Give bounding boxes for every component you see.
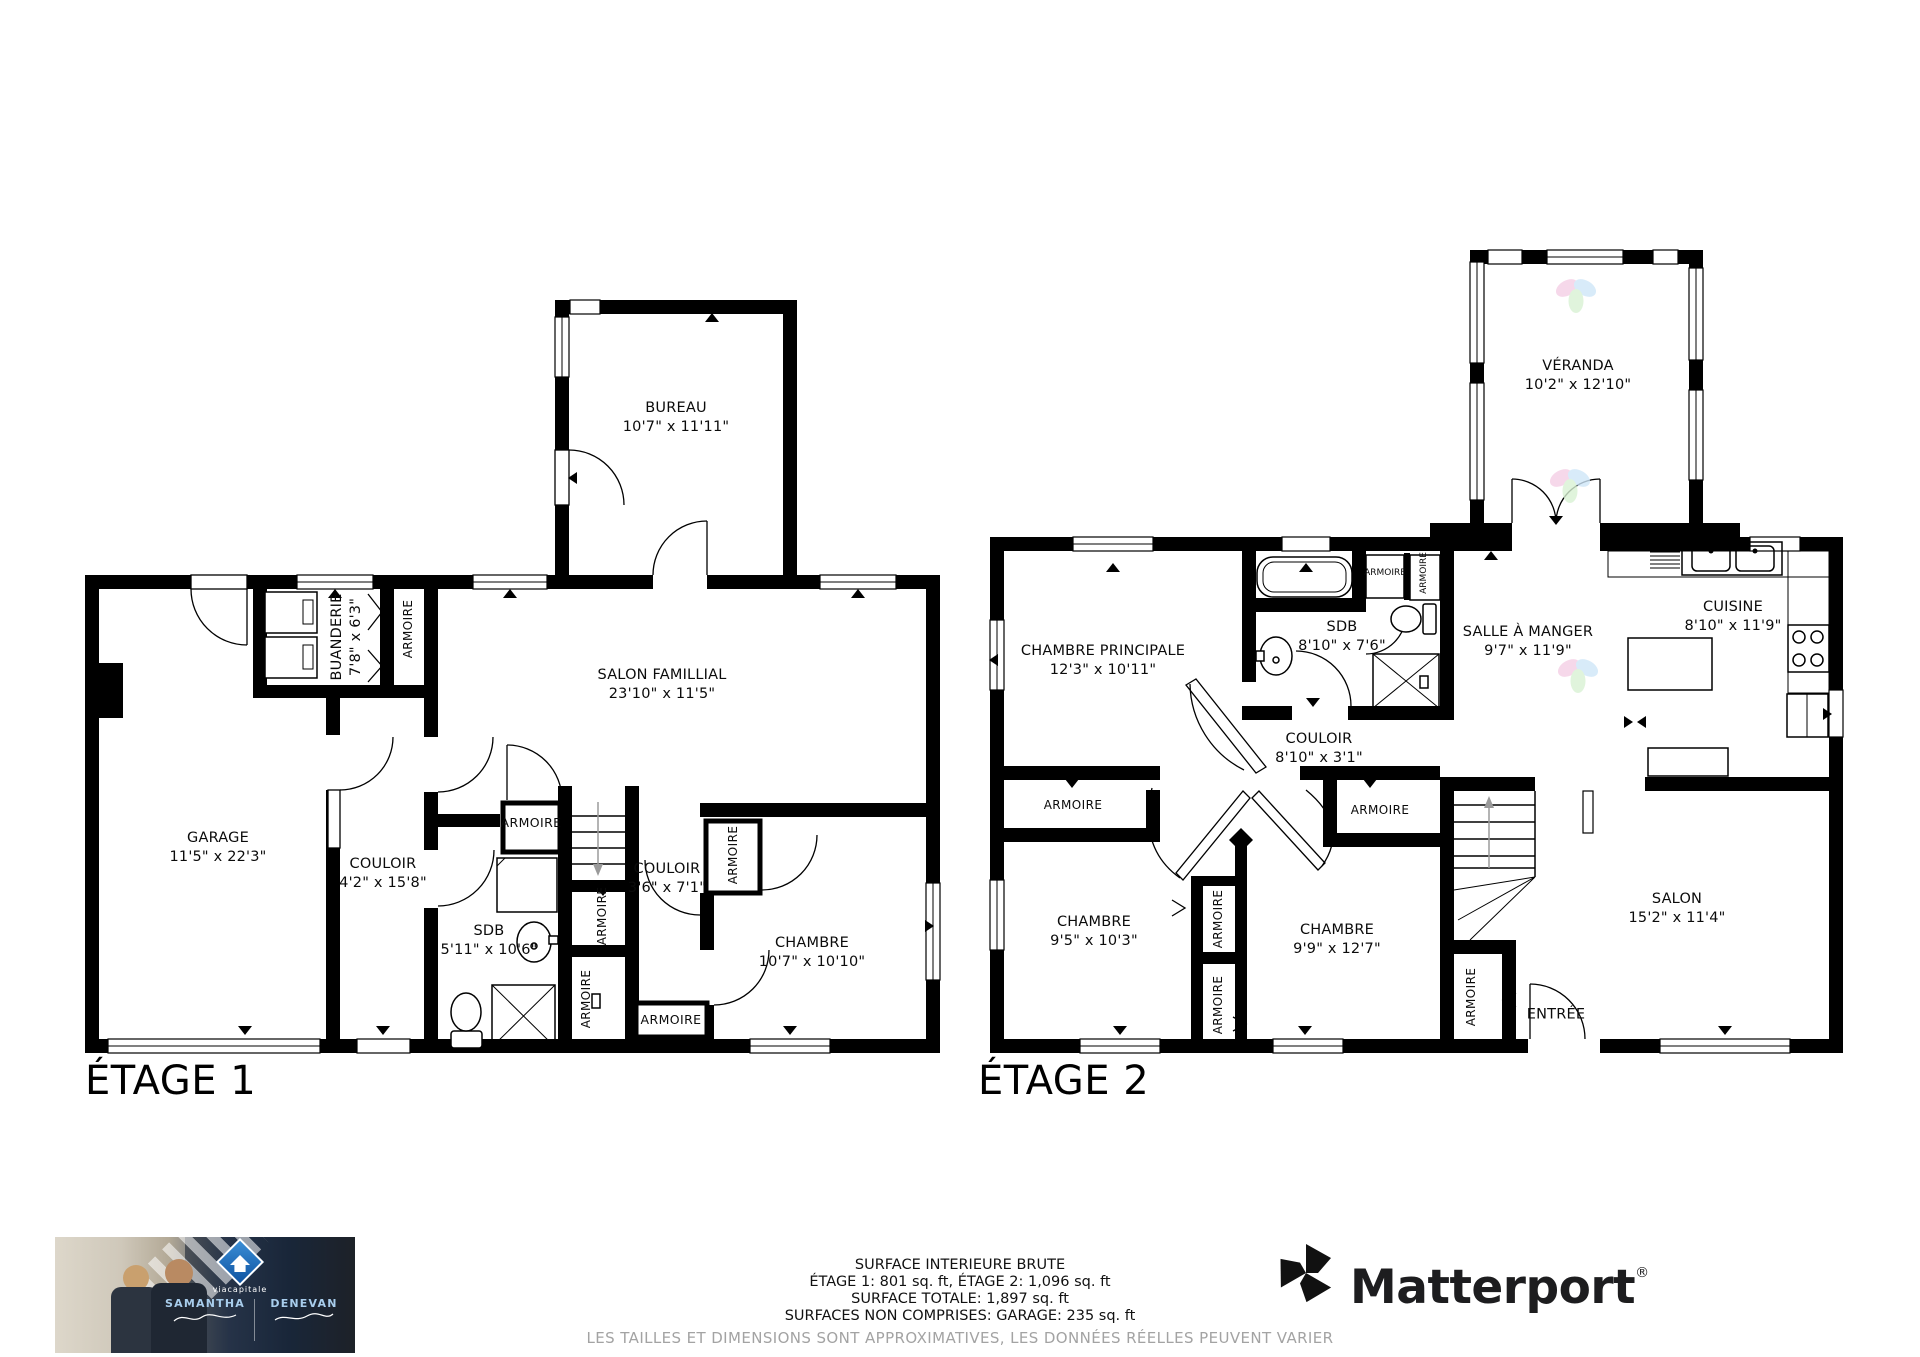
closet-label: ARMOIRE [1364,568,1406,580]
room-label-chambre-f2b: CHAMBRE 9'9" x 12'7" [1293,921,1381,959]
matterport-logo: Matterport® [1274,1240,1649,1321]
matterport-icon [1274,1240,1338,1306]
agent-name-1: SAMANTHA [163,1297,247,1310]
room-label-chambre-f1: CHAMBRE 10'7" x 10'10" [759,934,866,972]
room-label-bureau: BUREAU 10'7" x 11'11" [623,399,730,437]
room-label-buanderie: BUANDERIE 7'8" x 6'3" [328,594,366,681]
room-label-sdb-2: SDB 8'10" x 7'6" [1298,618,1386,656]
closet-label: ARMOIRE [726,826,742,885]
room-label-chambre-f2a: CHAMBRE 9'5" x 10'3" [1050,913,1138,951]
closet-label: ARMOIRE [1419,552,1431,594]
floorplan-page: BUREAU 10'7" x 11'11" SALON FAMILLIAL 23… [0,0,1920,1357]
room-label-couloir-f2: COULOIR 8'10" x 3'1" [1275,730,1363,768]
closet-label: ARMOIRE [579,970,595,1029]
closet-label: ARMOIRE [595,887,611,946]
agent-names: SAMANTHA DENEVAN [163,1297,348,1347]
room-label-chambre-principale: CHAMBRE PRINCIPALE 12'3" x 10'11" [1021,642,1185,680]
floor2-title: ÉTAGE 2 [978,1058,1149,1104]
closet-label: ARMOIRE [1211,890,1227,949]
via-capitale-wordmark: viacapitale [187,1285,293,1294]
agent-banner: viacapitale SAMANTHA DENEVAN [55,1237,355,1353]
via-capitale-house-icon [230,1252,250,1272]
agent-divider [254,1299,255,1341]
closet-label: ARMOIRE [641,1012,702,1029]
room-label-salon-famillial: SALON FAMILLIAL 23'10" x 11'5" [598,666,727,704]
room-label-couloir-2: COULOIR 3'6" x 7'1" [628,860,706,898]
room-label-cuisine: CUISINE 8'10" x 11'9" [1684,598,1781,636]
floor1-title: ÉTAGE 1 [85,1058,256,1104]
room-label-garage: GARAGE 11'5" x 22'3" [169,829,266,867]
signature-flourish [269,1310,339,1326]
closet-label: ARMOIRE [401,600,417,659]
floorplan-graphic [0,0,1920,1357]
agent-name-2: DENEVAN [262,1297,346,1310]
closet-label: ARMOIRE [1211,976,1227,1035]
closet-label: ARMOIRE [1044,798,1103,814]
room-label-salon: SALON 15'2" x 11'4" [1628,890,1725,928]
registered-mark: ® [1635,1265,1649,1281]
signature-flourish [170,1310,240,1326]
room-label-veranda: VÉRANDA 10'2" x 12'10" [1525,357,1632,395]
room-label-couloir-1: COULOIR 4'2" x 15'8" [339,855,427,893]
closet-label: ARMOIRE [1464,968,1480,1027]
room-label-entree: ENTRÉE [1527,1005,1585,1024]
closet-label: ARMOIRE [1351,803,1410,819]
closet-label: ARMOIRE [501,815,562,832]
matterport-wordmark: Matterport® [1350,1240,1649,1321]
room-label-sdb-1: SDB 5'11" x 10'6" [440,922,537,960]
room-label-salle-a-manger: SALLE À MANGER 9'7" x 11'9" [1463,623,1593,661]
